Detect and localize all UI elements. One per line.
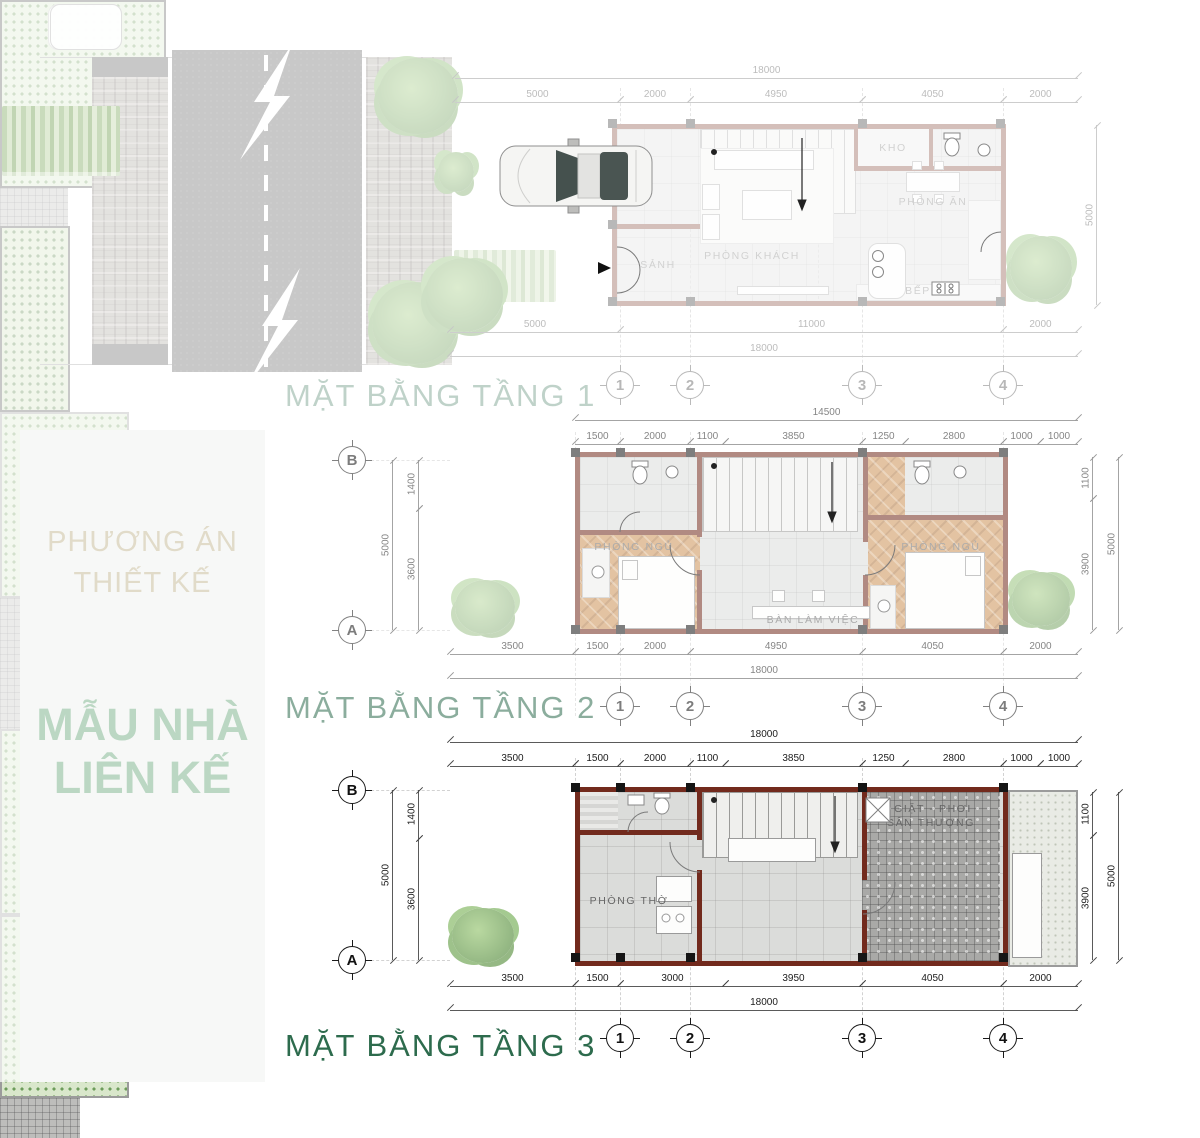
dim-label: 18000 [450,997,1078,1008]
dim-line: 4050 [862,986,1003,987]
f3-wall [862,792,867,880]
dim-line: 1000 [1003,766,1040,767]
dim-label: 1100 [1081,803,1092,825]
tree-icon [452,908,514,963]
dim-line: 3000 [620,986,725,987]
dim-label: 3500 [450,973,575,984]
grid-bubble-label: 2 [686,1030,694,1047]
dim-line: 18000 [450,1010,1078,1011]
f3-sofa [728,838,816,862]
f3-wall [580,830,702,835]
f3-wall [697,870,702,961]
grid-bubble-2: 2 [676,1024,704,1052]
column [858,953,867,962]
column [999,783,1008,792]
column [686,783,695,792]
f3-skylight-void [1012,853,1042,958]
column [571,953,580,962]
floor3-title: MẶT BẰNG TẦNG 3 [285,1028,596,1064]
dim-label: 1500 [575,973,620,984]
grid-bubble-1: 1 [606,1024,634,1052]
f3-garden-below [0,915,129,1098]
dim-line: 3850 [725,766,862,767]
dim-line: 3600 [418,838,419,960]
dim-line: 2000 [1003,986,1078,987]
dim-label: 1400 [407,803,418,825]
dim-line: 1250 [862,766,905,767]
dim-label: 1500 [575,753,620,764]
dim-label: 3850 [725,753,862,764]
dim-label: 3500 [450,753,575,764]
dim-label: 5000 [1107,865,1118,887]
grid-bubble-3: 3 [848,1024,876,1052]
dim-line: 5000 [1118,792,1119,960]
grid-bubble-B: B [338,776,366,804]
dim-label: 1250 [862,753,905,764]
dim-label: 1000 [1003,753,1040,764]
f3-altar-cabinet [656,906,692,934]
dim-label: 1100 [690,753,725,764]
grid-bubble-label: 1 [616,1030,624,1047]
dim-label: 3000 [620,973,725,984]
dim-line: 3500 [450,986,575,987]
dim-line: 1500 [575,986,620,987]
column [616,783,625,792]
grid-bubble-A: A [338,946,366,974]
dim-line: 1100 [690,766,725,767]
dim-label: 3950 [725,973,862,984]
room-label-phong-tho: PHÒNG THỜ [590,895,669,907]
column [686,953,695,962]
dim-label: 1000 [1040,753,1078,764]
grid-bubble-label: 3 [858,1030,866,1047]
room-label-san-thuong: SÂN THƯỢNG [887,817,975,829]
dim-line: 1400 [418,790,419,838]
grid-bubble-4: 4 [989,1024,1017,1052]
dim-label: 2800 [905,753,1003,764]
dim-label: 2000 [620,753,690,764]
room-label-giat-phoi: GIẶT - PHƠI [894,803,972,815]
dim-line: 3500 [450,766,575,767]
grid-bubble-label: B [347,782,358,799]
dim-line: 18000 [450,742,1078,743]
grid-bubble-label: 4 [999,1030,1007,1047]
f3-closet [580,792,618,832]
dim-line: 2800 [905,766,1003,767]
dim-label: 18000 [450,729,1078,740]
dim-line: 2000 [620,766,690,767]
f3-bathroom [0,1098,80,1138]
column [571,783,580,792]
dim-line: 1100 [1092,792,1093,835]
column [999,953,1008,962]
dim-line: 1500 [575,766,620,767]
grid-bubble-label: A [347,952,358,969]
dim-label: 2000 [1003,973,1078,984]
column [858,783,867,792]
dim-label: 3600 [407,888,418,910]
dim-line: 1000 [1040,766,1078,767]
dim-line: 5000 [392,790,393,960]
dim-line: 3950 [725,986,862,987]
dim-label: 5000 [381,864,392,886]
dim-label: 4050 [862,973,1003,984]
column [616,953,625,962]
dim-label: 3900 [1081,886,1092,908]
dim-line: 3900 [1092,835,1093,960]
